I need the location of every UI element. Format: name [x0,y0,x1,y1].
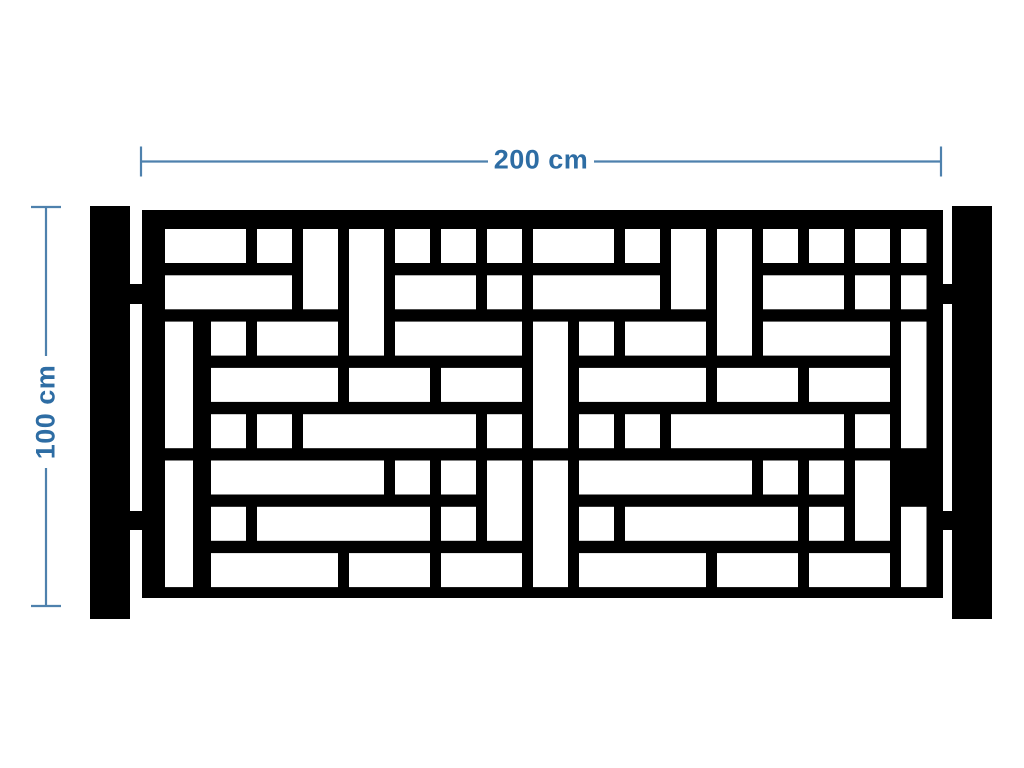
panel-cutout [487,414,522,448]
panel-cutout [809,507,844,541]
panel-cutout [441,507,476,541]
panel-cutout [579,414,614,448]
panel-cutout [579,553,706,587]
panel-cutout [211,368,338,402]
panel-cutout [533,322,568,449]
panel-cutout [211,322,246,356]
panel-cutout [303,229,338,309]
panel-cutout [165,275,292,309]
panel-cutout [257,322,338,356]
panel-cutout [901,275,927,309]
panel-cutout [533,461,568,588]
panel-cutout [717,553,798,587]
panel-cutout [303,414,476,448]
panel-cutout [441,553,522,587]
panel-cutout [763,461,798,495]
panel-cutout [395,275,476,309]
panel-cutout [349,229,384,356]
panel-cutout [809,461,844,495]
panel-cutout [717,368,798,402]
panel-cutout [211,414,246,448]
panel-cutout [625,229,660,263]
panel-cutout [717,229,752,356]
panel-cutout [211,461,384,495]
panel-cutout [487,461,522,541]
panel-cutout [579,368,706,402]
panel-cutout [257,414,292,448]
right-post [952,206,992,619]
panel-cutout [487,275,522,309]
panel-cutout [671,229,706,309]
panel-cutout [395,322,522,356]
panel-cutout [579,461,752,495]
panel-cutout [763,229,798,263]
post-connector [129,284,143,304]
diagram-drawing [0,0,1024,768]
height-dimension-label: 100 cm [31,365,62,460]
panel-cutout [579,507,614,541]
panel-cutout [855,229,890,263]
panel-cutout [211,553,338,587]
post-connector [129,511,143,530]
panel-cutout [809,553,890,587]
panel-cutout [349,368,430,402]
panel-cutout [165,229,246,263]
panel-cutout [395,461,430,495]
panel-cutout [349,553,430,587]
panel-cutout [763,322,890,356]
panel-cutout [211,507,246,541]
panel-cutout [533,275,660,309]
fence-panel-diagram: 200 cm 100 cm [0,0,1024,768]
panel-cutout [533,229,614,263]
panel-cutout [855,461,890,541]
panel-cutout [165,322,193,449]
panel-cutout [901,507,927,587]
panel-cutout [257,507,430,541]
panel-cutout [901,322,927,449]
panel-cutout [855,275,890,309]
panel-cutout [625,507,798,541]
panel-cutout [441,461,476,495]
panel-cutout [809,229,844,263]
panel-cutout [487,229,522,263]
panel-cutout [441,229,476,263]
panel-cutout [671,414,844,448]
panel-cutout [165,461,193,588]
panel-cutout [625,414,660,448]
panel-cutout [395,229,430,263]
panel-cutout [579,322,614,356]
left-post [90,206,130,619]
width-dimension-label: 200 cm [494,145,589,176]
panel-cutout [257,229,292,263]
panel-cutout [809,368,890,402]
panel-cutout [625,322,706,356]
panel-cutout [901,229,927,263]
panel-cutout [855,414,890,448]
panel-cutout [441,368,522,402]
panel-cutout [763,275,844,309]
